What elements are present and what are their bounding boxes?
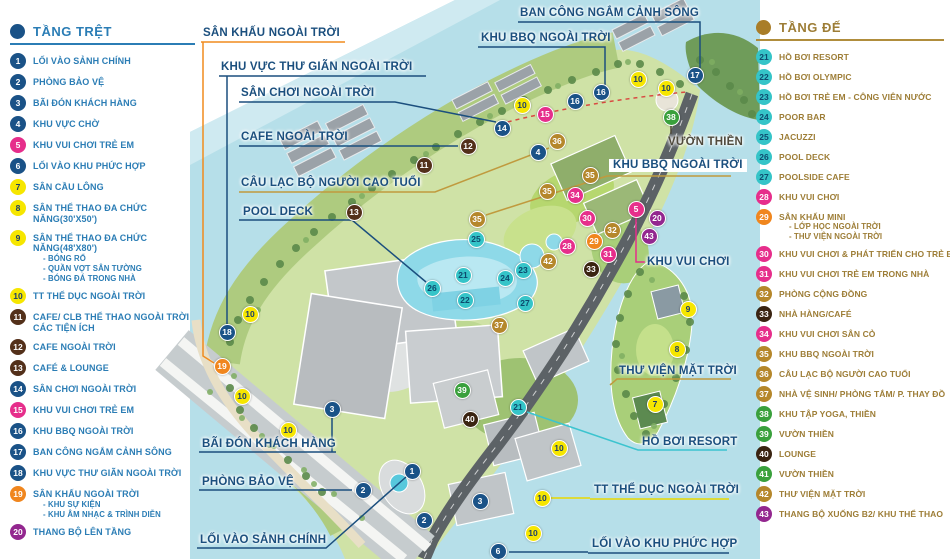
legend-item-27: 27POOLSIDE CAFE bbox=[756, 168, 944, 185]
legend-number-badge: 24 bbox=[756, 109, 772, 125]
map-marker-10: 10 bbox=[242, 306, 259, 323]
legend-number-badge: 18 bbox=[10, 465, 26, 481]
map-marker-3: 3 bbox=[324, 401, 341, 418]
legend-podium-floor-items: 21HỒ BƠI RESORT22HỒ BƠI OLYMPIC23HỒ BƠI … bbox=[756, 48, 944, 522]
legend-item-14: 14SÂN CHƠI NGOÀI TRỜI bbox=[10, 380, 195, 397]
legend-number-badge: 27 bbox=[756, 169, 772, 185]
legend-item-label: LOUNGE bbox=[779, 445, 816, 459]
legend-number-badge: 4 bbox=[10, 116, 26, 132]
legend-item-18: 18KHU VỰC THƯ GIÃN NGOÀI TRỜI bbox=[10, 464, 195, 481]
legend-item-sublabel: - KHU ÂM NHẠC & TRÌNH DIỄN bbox=[43, 510, 161, 520]
legend-item-label: SÂN THỂ THAO ĐA CHỨC NĂNG(30'X50') bbox=[33, 199, 195, 225]
map-marker-31: 31 bbox=[600, 246, 617, 263]
legend-item-9: 9SÂN THỂ THAO ĐA CHỨC NĂNG(48'X80')- BÓN… bbox=[10, 229, 195, 284]
legend-item-label: KHU VUI CHƠI bbox=[779, 188, 839, 202]
legend-item-35: 35KHU BBQ NGOÀI TRỜI bbox=[756, 345, 944, 362]
map-marker-10: 10 bbox=[514, 97, 531, 114]
legend-item-40: 40LOUNGE bbox=[756, 445, 944, 462]
map-marker-26: 26 bbox=[424, 280, 441, 297]
legend-number-badge: 11 bbox=[10, 309, 26, 325]
map-callout-label: PHÒNG BẢO VỆ bbox=[202, 476, 294, 488]
legend-item-label: CAFÉ & LOUNGE bbox=[33, 359, 109, 374]
legend-item-8: 8SÂN THỂ THAO ĐA CHỨC NĂNG(30'X50') bbox=[10, 199, 195, 225]
map-marker-14: 14 bbox=[494, 120, 511, 137]
legend-item-label: KHU VUI CHƠI TRẺ EM bbox=[33, 136, 134, 151]
legend-item-7: 7SÂN CẦU LÔNG bbox=[10, 178, 195, 195]
map-marker-18: 18 bbox=[219, 324, 236, 341]
map-marker-10: 10 bbox=[234, 388, 251, 405]
legend-item-6: 6LỐI VÀO KHU PHỨC HỢP bbox=[10, 157, 195, 174]
legend-number-badge: 5 bbox=[10, 137, 26, 153]
legend-podium-floor-header: TẦNG ĐẾ bbox=[756, 20, 944, 41]
legend-number-badge: 35 bbox=[756, 346, 772, 362]
legend-item-label: CAFE/ CLB THỂ THAO NGOÀI TRỜI CÁC TIỆN Í… bbox=[33, 308, 195, 334]
map-marker-10: 10 bbox=[280, 422, 297, 439]
map-marker-7: 7 bbox=[647, 396, 664, 413]
map-marker-8: 8 bbox=[669, 341, 686, 358]
legend-item-label: LỐI VÀO KHU PHỨC HỢP bbox=[33, 157, 146, 172]
map-marker-13: 13 bbox=[346, 204, 363, 221]
map-marker-38: 38 bbox=[663, 109, 680, 126]
map-marker-12: 12 bbox=[460, 138, 477, 155]
legend-number-badge: 15 bbox=[10, 402, 26, 418]
legend-item-26: 26POOL DECK bbox=[756, 148, 944, 165]
legend-number-badge: 40 bbox=[756, 446, 772, 462]
legend-number-badge: 3 bbox=[10, 95, 26, 111]
legend-item-sublabel: - BÓNG ĐÁ TRONG NHÀ bbox=[43, 274, 195, 284]
legend-item-label: THANG BỘ XUỐNG B2/ KHU THỂ THAO bbox=[779, 505, 943, 519]
map-callout-label: SÂN CHƠI NGOÀI TRỜI bbox=[241, 87, 374, 99]
legend-item-label: KHU BBQ NGOÀI TRỜI bbox=[779, 345, 874, 359]
legend-item-label: KHU VUI CHƠI TRẺ EM bbox=[33, 401, 134, 416]
map-callout-label: BAN CÔNG NGẮM CẢNH SÔNG bbox=[520, 7, 699, 19]
legend-header-dot-icon bbox=[756, 20, 771, 35]
map-callout-label: HỒ BƠI RESORT bbox=[642, 436, 737, 448]
map-callout-label: KHU VUI CHƠI bbox=[647, 256, 730, 268]
legend-item-label: VƯỜN THIỀN bbox=[779, 425, 834, 439]
legend-item-label: HỒ BƠI OLYMPIC bbox=[779, 68, 852, 82]
legend-item-label: KHU VUI CHƠI SÂN CỎ bbox=[779, 325, 876, 339]
legend-item-13: 13CAFÉ & LOUNGE bbox=[10, 359, 195, 376]
map-callout-label: VƯỜN THIỀN bbox=[668, 136, 743, 148]
legend-number-badge: 36 bbox=[756, 366, 772, 382]
legend-item-label: THANG BỘ LÊN TẦNG bbox=[33, 523, 131, 538]
legend-ground-floor-header: TẦNG TRỆT bbox=[10, 24, 195, 45]
map-marker-21: 21 bbox=[510, 399, 527, 416]
legend-item-41: 41VƯỜN THIỀN bbox=[756, 465, 944, 482]
map-callout-label: KHU BBQ NGOÀI TRỜI bbox=[609, 159, 747, 172]
legend-number-badge: 32 bbox=[756, 286, 772, 302]
map-marker-37: 37 bbox=[491, 317, 508, 334]
map-callout-label: CÂU LẠC BỘ NGƯỜI CAO TUỔI bbox=[241, 177, 421, 189]
map-callout-label: LỐI VÀO SẢNH CHÍNH bbox=[200, 534, 326, 546]
legend-number-badge: 17 bbox=[10, 444, 26, 460]
legend-number-badge: 39 bbox=[756, 426, 772, 442]
legend-item-22: 22HỒ BƠI OLYMPIC bbox=[756, 68, 944, 85]
legend-item-25: 25JACUZZI bbox=[756, 128, 944, 145]
map-marker-10: 10 bbox=[658, 80, 675, 97]
legend-number-badge: 29 bbox=[756, 209, 772, 225]
legend-ground-floor-items: 1LỐI VÀO SẢNH CHÍNH2PHÒNG BẢO VỆ3BÃI ĐÓN… bbox=[10, 52, 195, 540]
legend-item-label: TT THỂ DỤC NGOÀI TRỜI bbox=[33, 287, 145, 302]
map-marker-30: 30 bbox=[579, 210, 596, 227]
legend-item-label: HỒ BƠI RESORT bbox=[779, 48, 849, 62]
map-marker-34: 34 bbox=[567, 187, 584, 204]
legend-number-badge: 37 bbox=[756, 386, 772, 402]
legend-item-43: 43THANG BỘ XUỐNG B2/ KHU THỂ THAO bbox=[756, 505, 944, 522]
legend-item-30: 30KHU VUI CHƠI & PHÁT TRIỂN CHO TRẺ EM bbox=[756, 245, 944, 262]
legend-item-label: KHU TẬP YOGA, THIỀN bbox=[779, 405, 876, 419]
map-marker-16: 16 bbox=[593, 84, 610, 101]
map-marker-2: 2 bbox=[355, 482, 372, 499]
map-marker-9: 9 bbox=[680, 301, 697, 318]
legend-item-label: SÂN CHƠI NGOÀI TRỜI bbox=[33, 380, 136, 395]
legend-item-label: CÂU LẠC BỘ NGƯỜI CAO TUỔI bbox=[779, 365, 911, 379]
map-marker-36: 36 bbox=[549, 133, 566, 150]
legend-number-badge: 41 bbox=[756, 466, 772, 482]
map-callout-label: CAFE NGOÀI TRỜI bbox=[241, 131, 348, 143]
map-marker-11: 11 bbox=[416, 157, 433, 174]
legend-item-sublabel: - LỚP HỌC NGOÀI TRỜI bbox=[789, 222, 882, 232]
map-marker-6: 6 bbox=[490, 543, 507, 560]
legend-item-sublabel: - KHU SỰ KIỆN bbox=[43, 500, 161, 510]
map-marker-10: 10 bbox=[551, 440, 568, 457]
map-callout-label: KHU BBQ NGOÀI TRỜI bbox=[481, 32, 611, 44]
legend-item-33: 33NHÀ HÀNG/CAFÉ bbox=[756, 305, 944, 322]
map-marker-10: 10 bbox=[534, 490, 551, 507]
map-callout-label: POOL DECK bbox=[243, 206, 313, 218]
legend-item-label: CAFE NGOÀI TRỜI bbox=[33, 338, 116, 353]
legend-item-39: 39VƯỜN THIỀN bbox=[756, 425, 944, 442]
legend-item-42: 42THƯ VIỆN MẶT TRỜI bbox=[756, 485, 944, 502]
legend-item-label: SÂN KHẤU MINI- LỚP HỌC NGOÀI TRỜI- THƯ V… bbox=[779, 208, 882, 242]
legend-item-11: 11CAFE/ CLB THỂ THAO NGOÀI TRỜI CÁC TIỆN… bbox=[10, 308, 195, 334]
map-marker-29: 29 bbox=[586, 233, 603, 250]
map-marker-17: 17 bbox=[687, 67, 704, 84]
legend-item-2: 2PHÒNG BẢO VỆ bbox=[10, 73, 195, 90]
legend-number-badge: 21 bbox=[756, 49, 772, 65]
legend-number-badge: 13 bbox=[10, 360, 26, 376]
legend-podium-floor-title: TẦNG ĐẾ bbox=[779, 20, 841, 35]
legend-item-3: 3BÃI ĐÓN KHÁCH HÀNG bbox=[10, 94, 195, 111]
legend-item-12: 12CAFE NGOÀI TRỜI bbox=[10, 338, 195, 355]
legend-item-10: 10TT THỂ DỤC NGOÀI TRỜI bbox=[10, 287, 195, 304]
map-marker-20: 20 bbox=[649, 210, 666, 227]
legend-number-badge: 43 bbox=[756, 506, 772, 522]
map-marker-2: 2 bbox=[416, 512, 433, 529]
legend-number-badge: 38 bbox=[756, 406, 772, 422]
legend-item-15: 15KHU VUI CHƠI TRẺ EM bbox=[10, 401, 195, 418]
map-marker-39: 39 bbox=[454, 382, 471, 399]
legend-number-badge: 19 bbox=[10, 486, 26, 502]
legend-item-38: 38KHU TẬP YOGA, THIỀN bbox=[756, 405, 944, 422]
legend-item-sublabel: - BÓNG RỔ bbox=[43, 254, 195, 264]
legend-number-badge: 20 bbox=[10, 524, 26, 540]
legend-item-label: BÃI ĐÓN KHÁCH HÀNG bbox=[33, 94, 137, 109]
legend-number-badge: 16 bbox=[10, 423, 26, 439]
map-marker-40: 40 bbox=[462, 411, 479, 428]
legend-item-sublabel: - QUẦN VỢT SÂN TƯỜNG bbox=[43, 264, 195, 274]
map-marker-25: 25 bbox=[468, 231, 485, 248]
legend-podium-floor: TẦNG ĐẾ 21HỒ BƠI RESORT22HỒ BƠI OLYMPIC2… bbox=[756, 20, 944, 525]
map-marker-4: 4 bbox=[530, 144, 547, 161]
map-marker-23: 23 bbox=[515, 262, 532, 279]
map-marker-10: 10 bbox=[630, 71, 647, 88]
legend-item-label: NHÀ VỆ SINH/ PHÒNG TẮM/ P. THAY ĐỒ bbox=[779, 385, 945, 399]
legend-number-badge: 42 bbox=[756, 486, 772, 502]
legend-item-label: POOL DECK bbox=[779, 148, 830, 162]
legend-ground-floor-title: TẦNG TRỆT bbox=[33, 24, 112, 39]
legend-item-label: PHÒNG BẢO VỆ bbox=[33, 73, 104, 88]
legend-item-label: KHU VỰC CHỜ bbox=[33, 115, 99, 130]
legend-number-badge: 8 bbox=[10, 200, 26, 216]
legend-item-28: 28KHU VUI CHƠI bbox=[756, 188, 944, 205]
legend-number-badge: 1 bbox=[10, 53, 26, 69]
legend-item-label: NHÀ HÀNG/CAFÉ bbox=[779, 305, 852, 319]
legend-item-label: KHU VUI CHƠI & PHÁT TRIỂN CHO TRẺ EM bbox=[779, 245, 950, 259]
legend-item-label: KHU VỰC THƯ GIÃN NGOÀI TRỜI bbox=[33, 464, 181, 479]
map-callout-label: KHU VỰC THƯ GIÃN NGOÀI TRỜI bbox=[221, 61, 412, 73]
map-callout-label: TT THỂ DỤC NGOÀI TRỜI bbox=[594, 484, 739, 496]
map-marker-22: 22 bbox=[457, 292, 474, 309]
map-marker-28: 28 bbox=[559, 238, 576, 255]
map-marker-10: 10 bbox=[525, 525, 542, 542]
legend-item-1: 1LỐI VÀO SẢNH CHÍNH bbox=[10, 52, 195, 69]
legend-item-label: HỒ BƠI TRẺ EM - CÔNG VIÊN NƯỚC bbox=[779, 88, 932, 102]
legend-number-badge: 2 bbox=[10, 74, 26, 90]
legend-ground-floor: TẦNG TRỆT 1LỐI VÀO SẢNH CHÍNH2PHÒNG BẢO … bbox=[10, 24, 195, 544]
legend-number-badge: 25 bbox=[756, 129, 772, 145]
site-plan-page: 1015161610101738141211364133535353425212… bbox=[0, 0, 950, 559]
legend-number-badge: 7 bbox=[10, 179, 26, 195]
legend-number-badge: 6 bbox=[10, 158, 26, 174]
legend-item-4: 4KHU VỰC CHỜ bbox=[10, 115, 195, 132]
legend-number-badge: 33 bbox=[756, 306, 772, 322]
legend-item-19: 19SÂN KHẤU NGOÀI TRỜI- KHU SỰ KIỆN- KHU … bbox=[10, 485, 195, 519]
legend-item-17: 17BAN CÔNG NGẮM CẢNH SÔNG bbox=[10, 443, 195, 460]
legend-number-badge: 34 bbox=[756, 326, 772, 342]
legend-number-badge: 23 bbox=[756, 89, 772, 105]
legend-item-21: 21HỒ BƠI RESORT bbox=[756, 48, 944, 65]
legend-item-37: 37NHÀ VỆ SINH/ PHÒNG TẮM/ P. THAY ĐỒ bbox=[756, 385, 944, 402]
map-callout-label: LỐI VÀO KHU PHỨC HỢP bbox=[592, 538, 737, 550]
map-marker-24: 24 bbox=[497, 270, 514, 287]
map-marker-27: 27 bbox=[517, 295, 534, 312]
legend-item-label: JACUZZI bbox=[779, 128, 816, 142]
legend-item-label: THƯ VIỆN MẶT TRỜI bbox=[779, 485, 865, 499]
map-marker-15: 15 bbox=[537, 106, 554, 123]
legend-item-label: SÂN THỂ THAO ĐA CHỨC NĂNG(48'X80')- BÓNG… bbox=[33, 229, 195, 284]
legend-item-20: 20THANG BỘ LÊN TẦNG bbox=[10, 523, 195, 540]
legend-item-label: BAN CÔNG NGẮM CẢNH SÔNG bbox=[33, 443, 172, 458]
legend-item-32: 32PHÒNG CỘNG ĐỒNG bbox=[756, 285, 944, 302]
map-marker-21: 21 bbox=[455, 267, 472, 284]
map-marker-35: 35 bbox=[582, 167, 599, 184]
legend-number-badge: 12 bbox=[10, 339, 26, 355]
legend-item-5: 5KHU VUI CHƠI TRẺ EM bbox=[10, 136, 195, 153]
legend-item-16: 16KHU BBQ NGOÀI TRỜI bbox=[10, 422, 195, 439]
map-callout-label: SÂN KHẤU NGOÀI TRỜI bbox=[203, 27, 340, 39]
map-callout-label: THƯ VIỆN MẶT TRỜI bbox=[619, 365, 737, 377]
legend-item-label: SÂN KHẤU NGOÀI TRỜI- KHU SỰ KIỆN- KHU ÂM… bbox=[33, 485, 161, 519]
legend-number-badge: 31 bbox=[756, 266, 772, 282]
map-marker-35: 35 bbox=[539, 183, 556, 200]
legend-item-label: PHÒNG CỘNG ĐỒNG bbox=[779, 285, 867, 299]
legend-item-label: VƯỜN THIỀN bbox=[779, 465, 834, 479]
map-marker-33: 33 bbox=[583, 261, 600, 278]
legend-item-label: LỐI VÀO SẢNH CHÍNH bbox=[33, 52, 131, 67]
legend-number-badge: 30 bbox=[756, 246, 772, 262]
legend-item-34: 34KHU VUI CHƠI SÂN CỎ bbox=[756, 325, 944, 342]
legend-number-badge: 14 bbox=[10, 381, 26, 397]
legend-item-label: POOR BAR bbox=[779, 108, 826, 122]
legend-item-23: 23HỒ BƠI TRẺ EM - CÔNG VIÊN NƯỚC bbox=[756, 88, 944, 105]
map-marker-19: 19 bbox=[214, 358, 231, 375]
legend-number-badge: 26 bbox=[756, 149, 772, 165]
map-marker-32: 32 bbox=[604, 222, 621, 239]
map-marker-1: 1 bbox=[404, 463, 421, 480]
legend-item-31: 31KHU VUI CHƠI TRẺ EM TRONG NHÀ bbox=[756, 265, 944, 282]
map-marker-3: 3 bbox=[472, 493, 489, 510]
legend-item-sublabel: - THƯ VIỆN NGOÀI TRỜI bbox=[789, 232, 882, 242]
legend-item-label: POOLSIDE CAFE bbox=[779, 168, 850, 182]
legend-item-label: KHU VUI CHƠI TRẺ EM TRONG NHÀ bbox=[779, 265, 929, 279]
legend-header-dot-icon bbox=[10, 24, 25, 39]
legend-item-label: KHU BBQ NGOÀI TRỜI bbox=[33, 422, 133, 437]
legend-item-36: 36CÂU LẠC BỘ NGƯỜI CAO TUỔI bbox=[756, 365, 944, 382]
legend-item-label: SÂN CẦU LÔNG bbox=[33, 178, 104, 193]
legend-number-badge: 9 bbox=[10, 230, 26, 246]
map-marker-16: 16 bbox=[567, 93, 584, 110]
map-callout-label: BÃI ĐÓN KHÁCH HÀNG bbox=[202, 438, 336, 450]
map-marker-5: 5 bbox=[628, 201, 645, 218]
legend-number-badge: 28 bbox=[756, 189, 772, 205]
map-marker-42: 42 bbox=[540, 253, 557, 270]
map-marker-35: 35 bbox=[469, 211, 486, 228]
legend-item-29: 29SÂN KHẤU MINI- LỚP HỌC NGOÀI TRỜI- THƯ… bbox=[756, 208, 944, 242]
legend-number-badge: 10 bbox=[10, 288, 26, 304]
legend-number-badge: 22 bbox=[756, 69, 772, 85]
legend-item-24: 24POOR BAR bbox=[756, 108, 944, 125]
map-marker-43: 43 bbox=[641, 228, 658, 245]
